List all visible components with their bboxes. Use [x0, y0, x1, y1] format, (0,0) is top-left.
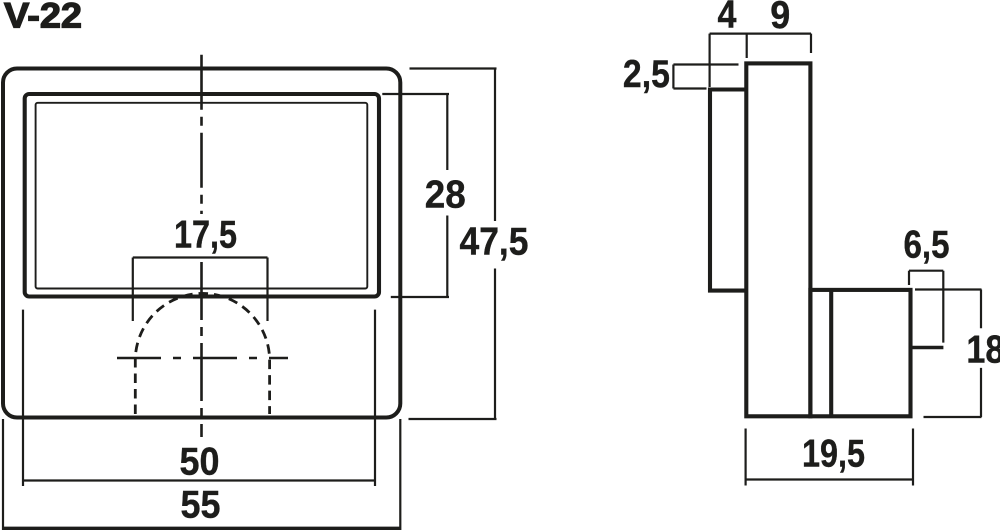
svg-text:V-22: V-22: [4, 0, 82, 35]
svg-text:9: 9: [770, 0, 790, 37]
svg-text:50: 50: [180, 440, 220, 483]
svg-text:4: 4: [718, 0, 737, 36]
svg-text:2,5: 2,5: [623, 53, 670, 96]
svg-text:18: 18: [966, 328, 1000, 371]
svg-text:28: 28: [425, 174, 466, 217]
svg-text:6,5: 6,5: [904, 224, 950, 267]
svg-text:55: 55: [181, 484, 221, 527]
svg-text:17,5: 17,5: [174, 214, 237, 257]
svg-text:19,5: 19,5: [802, 433, 865, 476]
svg-text:47,5: 47,5: [460, 221, 529, 264]
